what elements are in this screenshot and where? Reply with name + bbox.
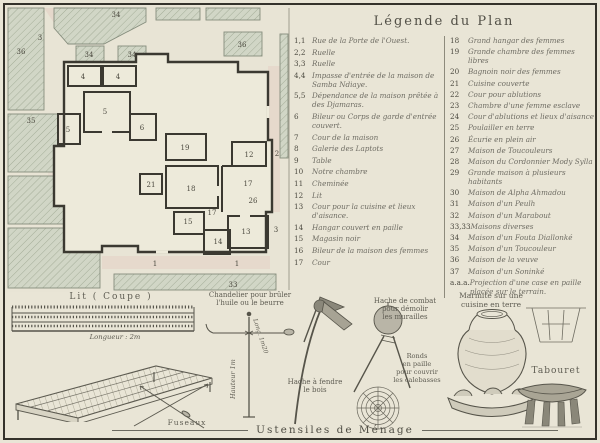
legend-item: 30Maison de Alpha Ahmadou — [450, 188, 594, 197]
svg-text:36: 36 — [238, 41, 247, 49]
legend-item: 35Maison d'un Toucouleur — [450, 244, 594, 253]
utensils-section-title-row: Ustensiles de Ménage — [112, 424, 558, 436]
svg-text:34: 34 — [128, 51, 137, 59]
legend-item: 19Grande chambre des femmes libres — [450, 47, 594, 65]
legend-item: 26Écurie en plein air — [450, 135, 594, 144]
legend-item: 11Cheminée — [294, 179, 444, 188]
svg-text:12: 12 — [245, 151, 254, 159]
svg-text:26: 26 — [249, 197, 258, 205]
svg-text:34: 34 — [85, 51, 94, 59]
legend-item: 22Cour pour ablutions — [450, 90, 594, 99]
svg-text:13: 13 — [242, 228, 251, 236]
legend-item: 3,3Ruelle — [294, 59, 444, 68]
legend-item: 18Grand hangar des femmes — [450, 36, 594, 45]
legend-item: 12Lit — [294, 191, 444, 200]
svg-text:17: 17 — [244, 180, 253, 188]
compound-walls — [54, 54, 272, 252]
svg-text:5: 5 — [66, 126, 70, 134]
stool-label: Tabouret — [518, 366, 594, 376]
legend-column-right: 18Grand hangar des femmes 19Grande chamb… — [444, 36, 594, 298]
compound-plan-map: 36 3 34 34 34 36 35 4 4 5 5 6 19 21 18 1… — [6, 6, 290, 292]
bed-length-label: Longueur : 2m — [50, 333, 180, 341]
legend-item: 29Grande maison à plusieurs habitants — [450, 168, 594, 186]
title-rule-right — [422, 430, 558, 431]
legend-item: 37Maison d'un Soninké — [450, 267, 594, 276]
legend-item: 33,33Maisons diverses — [450, 222, 594, 231]
legend-item: 15Magasin noir — [294, 234, 444, 243]
legend-item: 7Cour de la maison — [294, 133, 444, 142]
scanned-plate-page: 36 3 34 34 34 36 35 4 4 5 5 6 19 21 18 1… — [0, 0, 600, 443]
legend-item: 20Bagnoin noir des femmes — [450, 67, 594, 76]
legend-item: 34Maison d'un Fouta Diallonké — [450, 233, 594, 242]
legend-item: 28Maison du Cordonnier Mody Sylla — [450, 157, 594, 166]
svg-text:3: 3 — [274, 226, 278, 234]
svg-text:1: 1 — [235, 260, 239, 268]
legend-item: 14Hangar couvert en paille — [294, 223, 444, 232]
legend-item: 2,2Ruelle — [294, 48, 444, 57]
bed-section-title: Lit ( Coupe ) — [36, 292, 186, 302]
legend-item: 25Poulailler en terre — [450, 123, 594, 132]
legend-item: 36Maison de la veuve — [450, 255, 594, 264]
svg-text:6: 6 — [140, 124, 145, 132]
legend-item: 17Cour — [294, 258, 444, 267]
legend-item: 23Chambre d'une femme esclave — [450, 101, 594, 110]
legend-item: 6Bileur ou Corps de garde d'entrée couve… — [294, 112, 444, 130]
legend-item: 13Cour pour la cuisine et lieux d'aisanc… — [294, 202, 444, 220]
svg-text:36: 36 — [17, 48, 26, 56]
svg-text:2: 2 — [275, 150, 279, 158]
legend-item: 8Galerie des Laptots — [294, 144, 444, 153]
svg-text:4: 4 — [116, 73, 121, 81]
legend-item: 1,1Rue de la Porte de l'Ouest. — [294, 36, 444, 45]
svg-text:33: 33 — [229, 281, 238, 289]
legend-item: 5,5Dépendance de la maison prêtée à des … — [294, 91, 444, 109]
legend-item: 16Bileur de la maison des femmes — [294, 246, 444, 255]
svg-text:5: 5 — [103, 108, 107, 116]
candlestick-height-label: Hauteur 1m — [229, 348, 237, 410]
legend-item: 10Notre chambre — [294, 167, 444, 176]
svg-text:14: 14 — [214, 238, 223, 246]
legend-item: 21Cuisine couverte — [450, 79, 594, 88]
bed-section-sketch — [8, 303, 198, 335]
title-rule-left — [112, 430, 248, 431]
svg-text:4: 4 — [81, 73, 86, 81]
svg-text:3: 3 — [38, 34, 42, 42]
legend-item: 31Maison d'un Peulh — [450, 199, 594, 208]
svg-text:15: 15 — [184, 218, 193, 226]
candlestick-caption: Chandelier pour brûler l'huile ou le beu… — [194, 291, 306, 307]
svg-text:19: 19 — [181, 144, 190, 152]
legend-column-left: 1,1Rue de la Porte de l'Ouest. 2,2Ruelle… — [294, 36, 444, 298]
wood-axe-caption: Hache à fendre le bois — [276, 378, 354, 394]
legend-item: 4,4Impasse d'entrée de la maison de Samb… — [294, 71, 444, 89]
svg-text:1: 1 — [153, 260, 157, 268]
straw-ring-sketch — [357, 387, 399, 429]
legend-item: 32Maison d'un Marabout — [450, 211, 594, 220]
svg-text:21: 21 — [147, 181, 156, 189]
legend-item: 24Cour d'ablutions et lieux d'aisance — [450, 112, 594, 121]
pot-caption: Marmite sur une cuisine en terre — [432, 291, 550, 309]
legend-columns: 1,1Rue de la Porte de l'Ouest. 2,2Ruelle… — [294, 36, 594, 298]
svg-text:17: 17 — [208, 209, 217, 217]
straw-rings-caption: Ronds en paille pour couvrir les calebas… — [388, 352, 446, 384]
legend-item: 27Maison de Toucouleurs — [450, 146, 594, 155]
svg-text:35: 35 — [27, 117, 36, 125]
plan-legend: Légende du Plan 1,1Rue de la Porte de l'… — [294, 10, 594, 292]
utensils-section-title: Ustensiles de Ménage — [256, 424, 414, 436]
svg-text:18: 18 — [187, 185, 196, 193]
legend-item: 9Table — [294, 156, 444, 165]
svg-text:34: 34 — [112, 11, 121, 19]
legend-title: Légende du Plan — [294, 14, 594, 29]
